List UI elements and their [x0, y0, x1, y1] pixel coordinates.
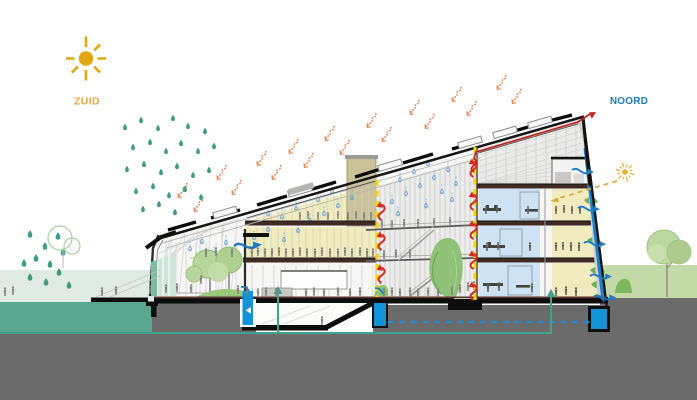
svg-text:NOORD: NOORD — [610, 96, 648, 107]
svg-text:ZUID: ZUID — [74, 96, 100, 108]
